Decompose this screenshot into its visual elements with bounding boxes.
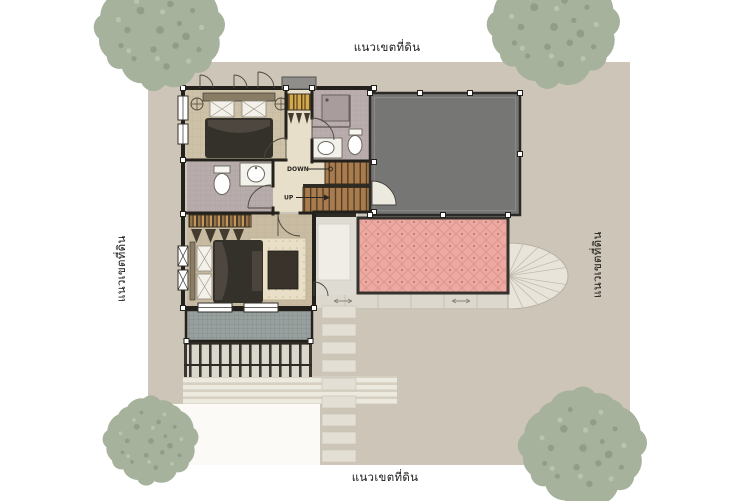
boundary-label-top: แนวเขตที่ดิน	[337, 39, 437, 57]
lower-roof	[370, 93, 520, 215]
headboard	[203, 93, 275, 101]
stepping-stone-path	[322, 306, 356, 462]
headboard	[190, 242, 195, 300]
stairs-up-label: UP	[284, 195, 294, 202]
site-plan-canvas: DOWN UP	[0, 0, 750, 501]
bench	[252, 251, 262, 291]
table	[268, 251, 298, 289]
toilet-tank	[214, 166, 230, 173]
pergola	[184, 342, 312, 377]
boundary-label-right: แนวเขตที่ดิน	[588, 222, 606, 308]
boundary-label-left: แนวเขตที่ดิน	[112, 226, 130, 312]
toilet	[348, 136, 362, 155]
boundary-label-bottom: แนวเขตที่ดิน	[330, 469, 440, 487]
closet	[189, 215, 251, 227]
sink	[318, 142, 334, 155]
terrace	[358, 218, 508, 293]
toilet-tank	[349, 129, 362, 135]
balcony-deck	[186, 310, 312, 341]
toilet	[214, 174, 230, 195]
stairs-down-label: DOWN	[287, 166, 309, 173]
entrance-steps	[183, 376, 397, 404]
